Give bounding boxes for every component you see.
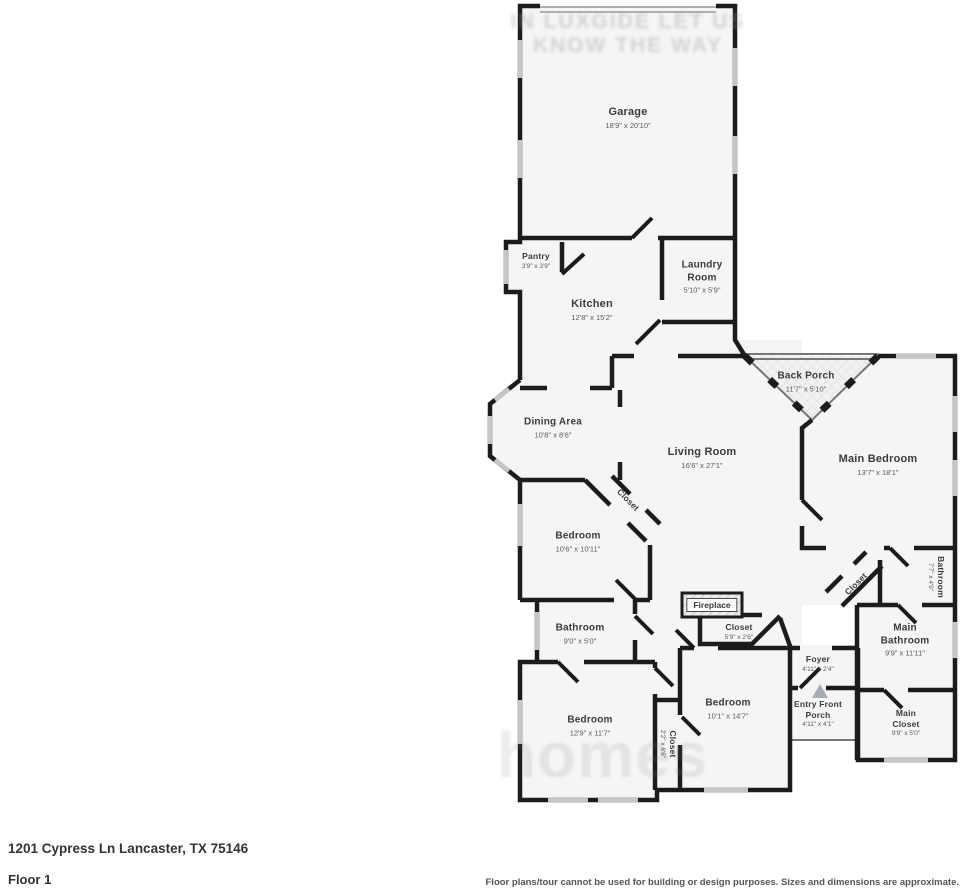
watermark-top: IN LUXGIDE LET US KNOW THE WAY xyxy=(511,10,746,58)
floor-label: Floor 1 xyxy=(8,872,51,887)
floor-areas xyxy=(490,6,955,800)
disclaimer-text: Floor plans/tour cannot be used for buil… xyxy=(486,877,960,888)
floorplan-drawing xyxy=(0,0,964,893)
address-text: 1201 Cypress Ln Lancaster, TX 75146 xyxy=(8,841,248,856)
watermark-bottom: homes xyxy=(497,718,708,792)
room-label-fireplace: Fireplace xyxy=(686,598,737,612)
floorplan-page: IN LUXGIDE LET US KNOW THE WAY homes Gar… xyxy=(0,0,964,893)
